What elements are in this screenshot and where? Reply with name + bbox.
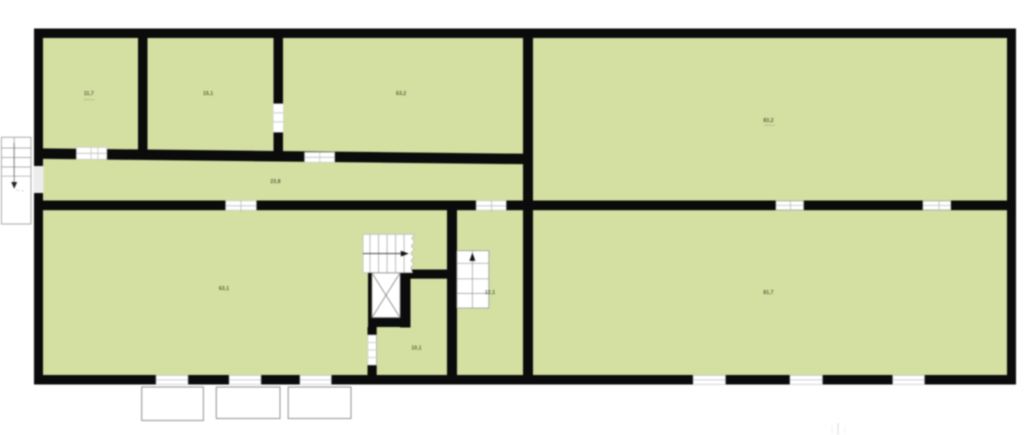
svg-text:63,1: 63,1 bbox=[219, 286, 229, 292]
svg-text:63,2: 63,2 bbox=[396, 91, 406, 97]
svg-text:Wohnen: Wohnen bbox=[764, 123, 775, 127]
svg-text:11,7: 11,7 bbox=[84, 91, 94, 97]
svg-text:81,7: 81,7 bbox=[763, 290, 773, 296]
svg-text:Wohnen: Wohnen bbox=[83, 98, 94, 102]
svg-text:15,1: 15,1 bbox=[203, 91, 213, 97]
svg-text:23,8: 23,8 bbox=[270, 179, 280, 185]
svg-text:12,1: 12,1 bbox=[485, 290, 495, 296]
svg-text:10,1: 10,1 bbox=[411, 345, 421, 351]
